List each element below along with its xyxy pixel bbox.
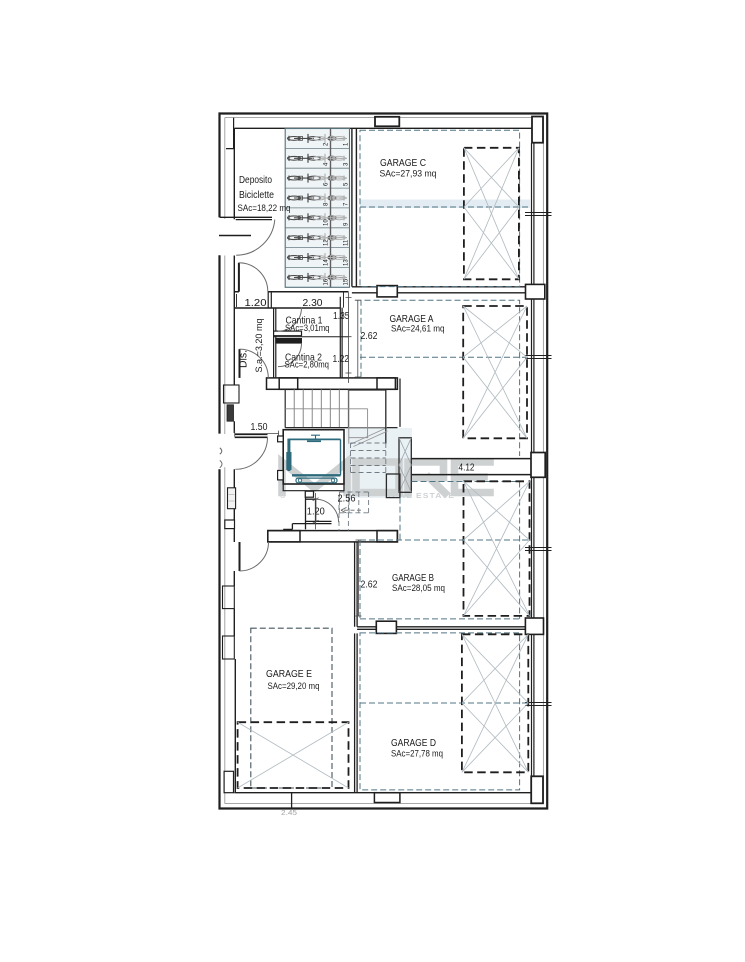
svg-text:2.62: 2.62 [361, 580, 378, 591]
svg-text:14: 14 [324, 259, 330, 266]
svg-text:SAc=27,78 mq: SAc=27,78 mq [391, 748, 443, 759]
svg-text:Biciclette: Biciclette [239, 190, 274, 201]
svg-text:15: 15 [344, 278, 350, 285]
svg-text:10: 10 [324, 219, 330, 226]
svg-text:SAc=28,05 mq: SAc=28,05 mq [392, 582, 445, 593]
svg-text:SAc=3,01mq: SAc=3,01mq [285, 322, 330, 333]
svg-text:4.12: 4.12 [459, 463, 475, 474]
svg-text:SAc=24,61 mq: SAc=24,61 mq [391, 323, 445, 334]
svg-text:SAc=27,93 mq: SAc=27,93 mq [380, 168, 437, 179]
svg-text:2.45: 2.45 [281, 808, 297, 817]
svg-text:2.56: 2.56 [338, 494, 356, 505]
svg-text:1.20: 1.20 [245, 298, 267, 309]
svg-text:12: 12 [324, 239, 330, 246]
svg-text:GARAGE E: GARAGE E [266, 669, 312, 680]
svg-text:11: 11 [344, 239, 350, 246]
svg-text:G: G [280, 493, 285, 500]
svg-text:16: 16 [324, 278, 330, 285]
svg-text:2.30: 2.30 [303, 298, 323, 309]
svg-text:Dis.: Dis. [238, 350, 250, 368]
svg-text:13: 13 [344, 259, 350, 266]
svg-text:REAL ESTATE: REAL ESTATE [385, 491, 455, 500]
svg-text:1.50: 1.50 [251, 422, 268, 433]
svg-text:1.22: 1.22 [333, 354, 350, 365]
svg-text:SAc=2,80mq: SAc=2,80mq [285, 359, 330, 370]
svg-text:SAc=18,22 mq: SAc=18,22 mq [238, 202, 291, 213]
svg-text:2.62: 2.62 [361, 331, 378, 342]
svg-text:SAc=29,20 mq: SAc=29,20 mq [268, 680, 320, 691]
svg-text:S.a.=3,20 mq: S.a.=3,20 mq [253, 319, 264, 373]
svg-text:Deposito: Deposito [239, 175, 272, 186]
svg-text:1.35: 1.35 [333, 311, 350, 322]
